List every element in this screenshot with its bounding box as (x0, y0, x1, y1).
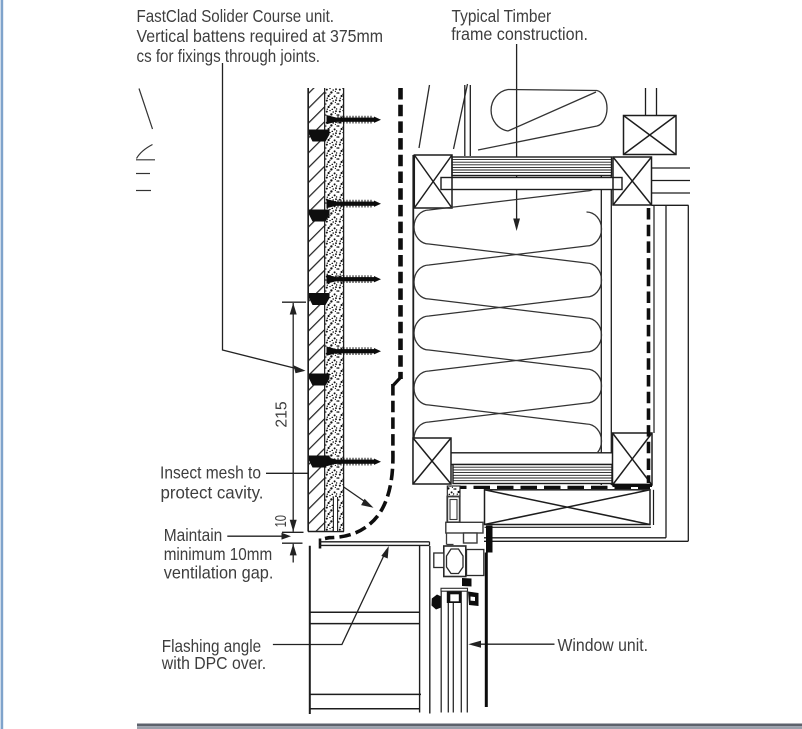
svg-text:minimum 10mm: minimum 10mm (164, 544, 273, 564)
svg-text:cs for fixings through joints.: cs for fixings through joints. (137, 46, 321, 66)
svg-text:Typical Timber: Typical Timber (452, 6, 552, 26)
svg-text:Maintain: Maintain (164, 525, 223, 545)
svg-text:215: 215 (274, 401, 291, 427)
svg-text:Insect mesh to: Insect mesh to (160, 463, 261, 483)
svg-text:Window unit.: Window unit. (558, 635, 649, 655)
svg-text:protect cavity.: protect cavity. (161, 483, 264, 503)
svg-text:10: 10 (273, 515, 290, 527)
svg-text:with DPC over.: with DPC over. (161, 653, 266, 673)
svg-text:FastClad Solider Course unit.: FastClad Solider Course unit. (137, 6, 335, 26)
svg-text:frame construction.: frame construction. (451, 24, 588, 44)
svg-text:ventilation gap.: ventilation gap. (164, 563, 274, 583)
svg-text:Vertical battens required at 3: Vertical battens required at 375mm (137, 26, 384, 46)
